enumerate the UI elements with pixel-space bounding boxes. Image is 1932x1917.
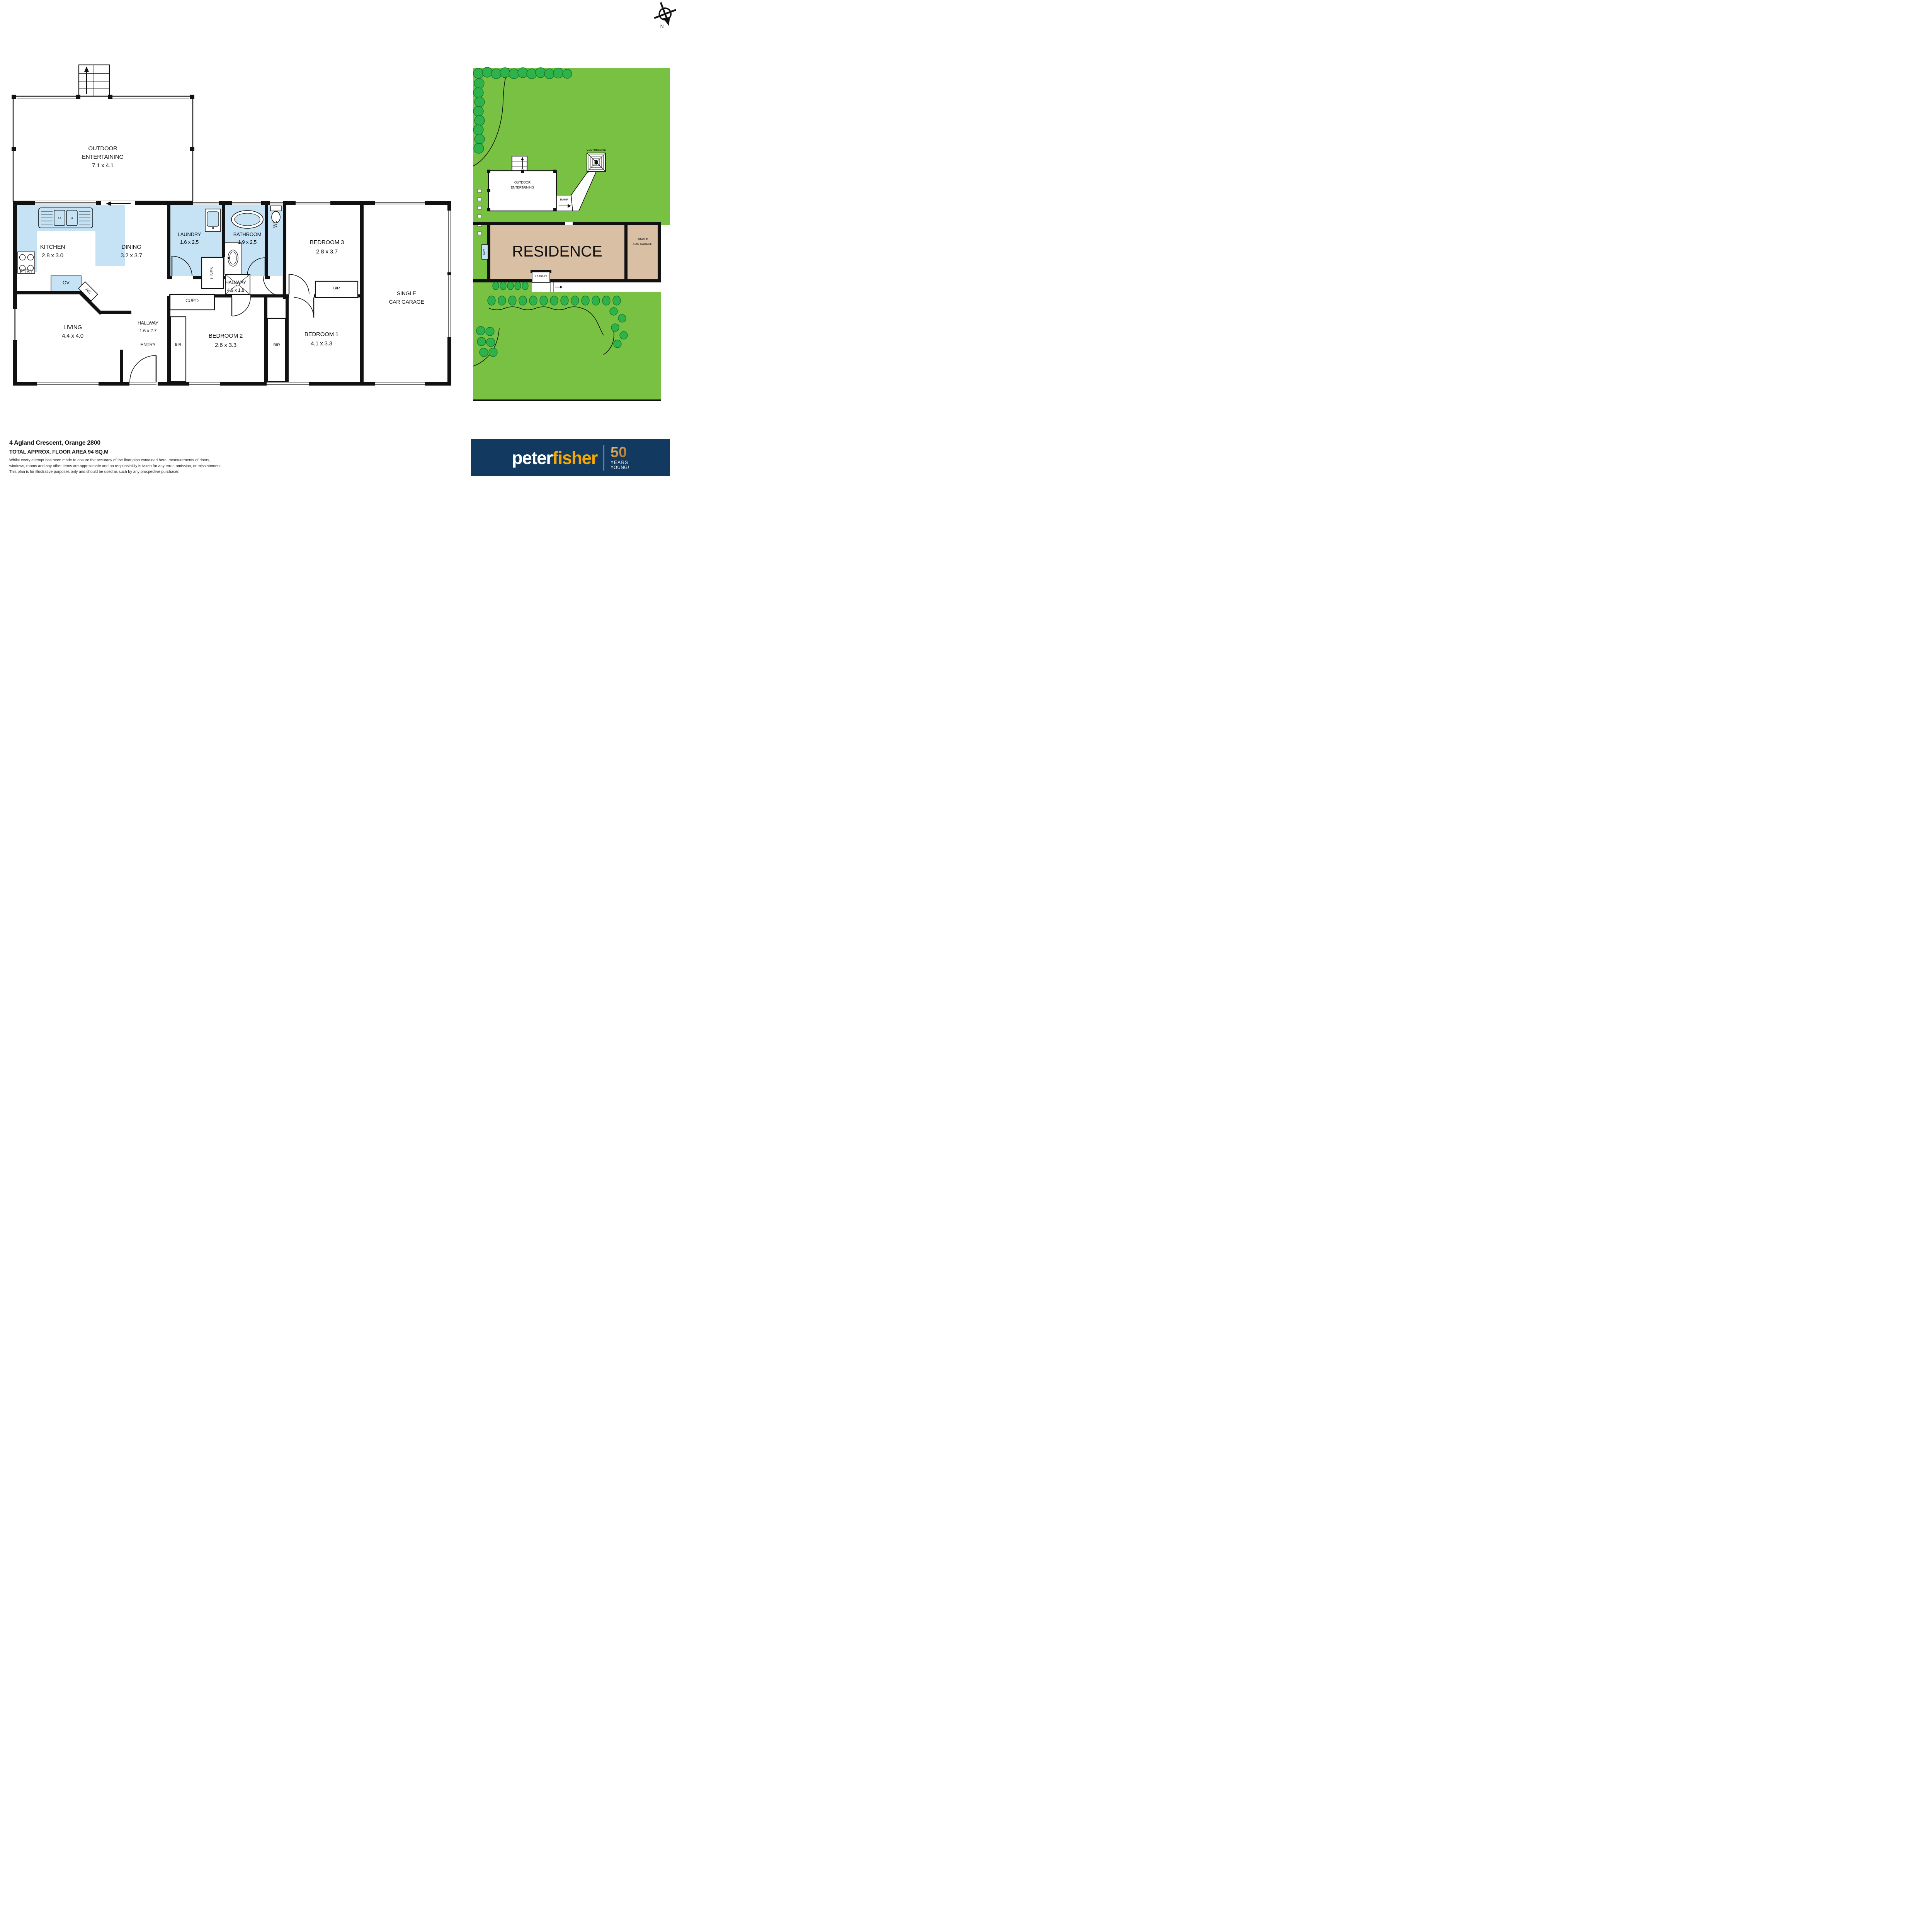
clothesline-icon — [587, 153, 605, 172]
room-label-living: LIVING — [63, 325, 82, 331]
bathtub-icon — [231, 211, 263, 228]
laundry-tub-icon — [205, 209, 221, 231]
room-dims-living: 4.4 x 4.0 — [62, 333, 83, 339]
site-boundary — [473, 399, 670, 401]
label-entry: ENTRY — [140, 342, 155, 347]
room-label-hallway-entry: HALLWAY — [138, 321, 158, 326]
vanity-icon — [225, 242, 241, 274]
site-label-porch: PORCH — [535, 274, 547, 278]
site-label-outdoor-1: OUTDOOR — [514, 181, 531, 184]
floor-area-subtitle: TOTAL APPROX. FLOOR AREA 94 SQ.M — [9, 449, 108, 455]
label-pantry: P'TRY — [20, 269, 32, 274]
compass-north-label: N — [660, 24, 663, 29]
logo-divider — [604, 445, 604, 471]
room-dims-hallway-main: 4.9 x 1.8 — [227, 288, 244, 293]
label-bir-mid: BIR — [274, 343, 280, 347]
room-dims-laundry: 1.6 x 2.5 — [180, 240, 199, 245]
room-label-laundry: LAUNDRY — [178, 232, 201, 237]
logo-years: YEARS — [611, 461, 629, 466]
logo-fisher: fisher — [553, 448, 597, 468]
room-label-garage-2: CAR GARAGE — [389, 299, 424, 305]
room-label-outdoor-1: OUTDOOR — [88, 146, 117, 152]
kitchen-sink-icon — [39, 208, 93, 228]
logo-young: YOUNG! — [611, 466, 629, 471]
room-label-wc: WC — [273, 221, 278, 228]
label-linen: LINEN — [210, 267, 215, 279]
label-cupboard: CUP'D — [185, 299, 199, 303]
room-dims-bedroom3: 2.8 x 3.7 — [316, 249, 338, 255]
room-dims-hallway-entry: 1.6 x 2.7 — [139, 328, 156, 333]
label-oven: OV — [63, 280, 70, 286]
north-arrow — [663, 15, 673, 27]
driveway — [661, 225, 670, 401]
room-label-bathroom: BATHROOM — [233, 232, 262, 237]
site-label-garage-1: SINGLE — [638, 238, 648, 241]
room-dims-kitchen: 2.8 x 3.0 — [42, 253, 63, 259]
agency-logo: peterfisher 50 YEARS YOUNG! — [471, 439, 670, 476]
compass-icon — [650, 0, 678, 30]
site-label-hwt: HWT — [484, 249, 486, 255]
label-bir-bedroom3: BIR — [333, 286, 340, 291]
deck — [12, 65, 194, 201]
front-path — [532, 282, 661, 292]
room-dims-bedroom1: 4.1 x 3.3 — [311, 341, 332, 347]
bir-mid-box — [267, 318, 286, 382]
logo-anniversary: 50 YEARS YOUNG! — [611, 445, 629, 471]
site-label-garage-2: CAR GARAGE — [633, 243, 652, 246]
address-title: 4 Agland Crescent, Orange 2800 — [9, 440, 100, 447]
site-label-residence: RESIDENCE — [512, 243, 602, 260]
site-label-outdoor-2: ENTERTAINING — [511, 186, 534, 189]
wall-gap — [565, 222, 573, 225]
room-dims-bedroom2: 2.6 x 3.3 — [215, 342, 236, 348]
room-label-kitchen: KITCHEN — [40, 244, 65, 250]
room-dims-dining: 3.2 x 3.7 — [121, 253, 142, 259]
disclaimer-line-2: windows, rooms and any other items are a… — [9, 464, 222, 468]
bir-left-box — [170, 317, 186, 382]
room-label-bedroom3: BEDROOM 3 — [310, 240, 344, 246]
site-label-clothesline: CLOTHESLINE — [587, 148, 606, 151]
logo-wordmark: peterfisher — [512, 449, 597, 467]
room-label-dining: DINING — [121, 244, 141, 250]
room-dims-bathroom: 1.9 x 2.5 — [238, 240, 257, 245]
room-dims-outdoor: 7.1 x 4.1 — [92, 163, 114, 169]
logo-fifty: 50 — [611, 445, 627, 460]
disclaimer-line-1: Whilst every attempt has been made to en… — [9, 458, 210, 462]
site-garage-block — [628, 225, 658, 279]
room-label-bedroom2: BEDROOM 2 — [209, 333, 243, 339]
front-door-arc — [130, 355, 156, 382]
room-label-hallway-main: HALLWAY — [225, 280, 246, 285]
site-plan — [473, 67, 670, 401]
logo-peter: peter — [512, 448, 553, 468]
room-label-bedroom1: BEDROOM 1 — [304, 331, 338, 338]
label-bir-left: BIR — [175, 343, 181, 347]
site-label-ramp: RAMP — [560, 198, 568, 201]
floorplan-page: OUTDOOR ENTERTAINING 7.1 x 4.1 KITCHEN 2… — [0, 0, 678, 479]
room-label-outdoor-2: ENTERTAINING — [82, 154, 124, 160]
site-stairs — [512, 156, 527, 171]
disclaimer-line-3: This plan is for illustrative purposes o… — [9, 470, 179, 474]
room-label-garage-1: SINGLE — [397, 291, 416, 296]
